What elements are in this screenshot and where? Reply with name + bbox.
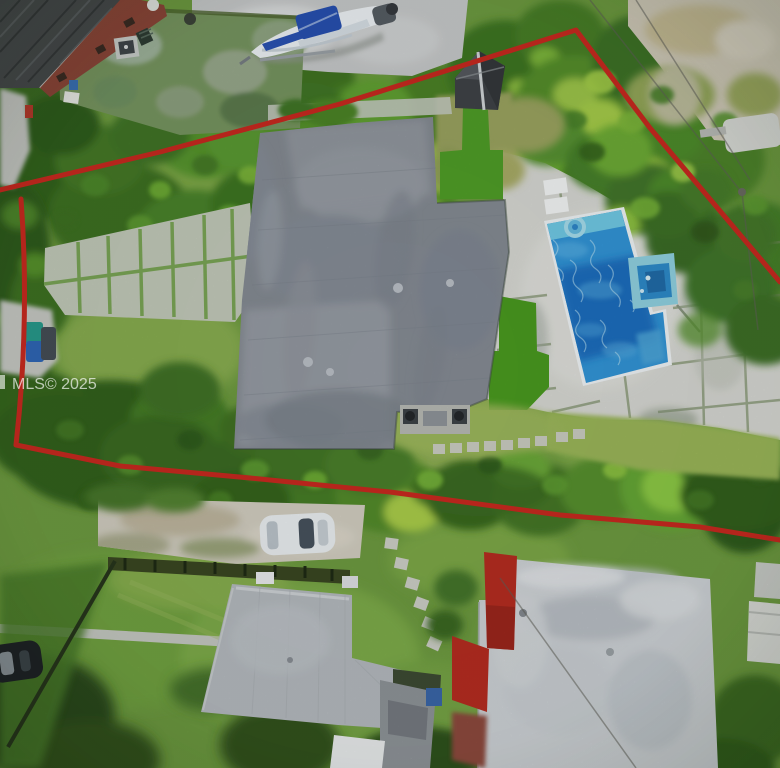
svg-text:MLS© 2025: MLS© 2025 xyxy=(12,376,97,393)
